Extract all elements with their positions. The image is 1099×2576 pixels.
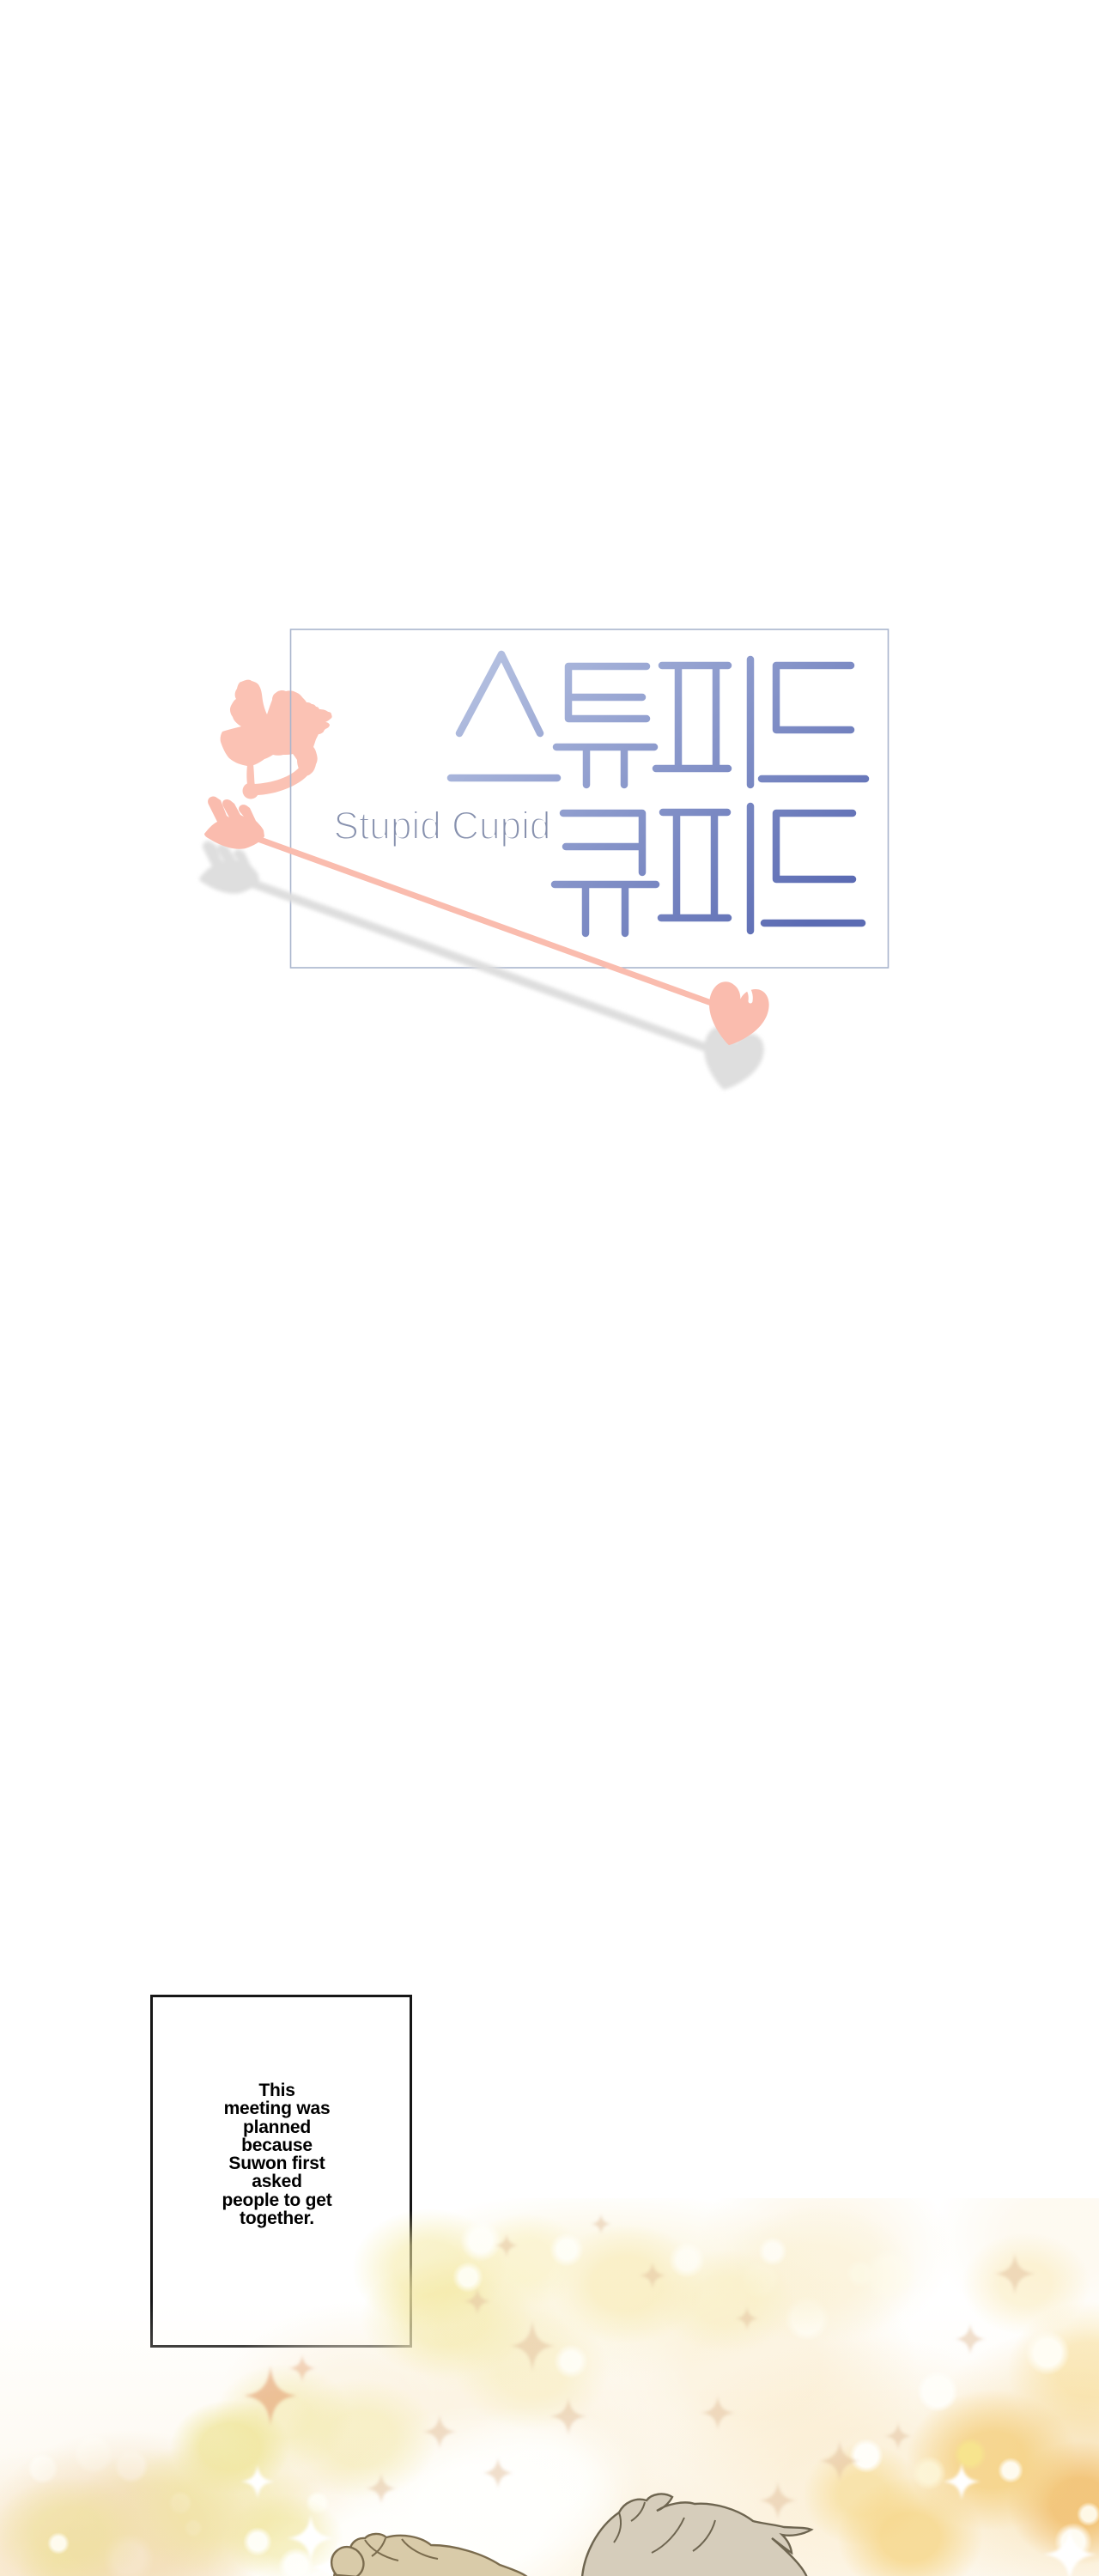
svg-text:Stupid Cupid: Stupid Cupid — [334, 804, 551, 848]
